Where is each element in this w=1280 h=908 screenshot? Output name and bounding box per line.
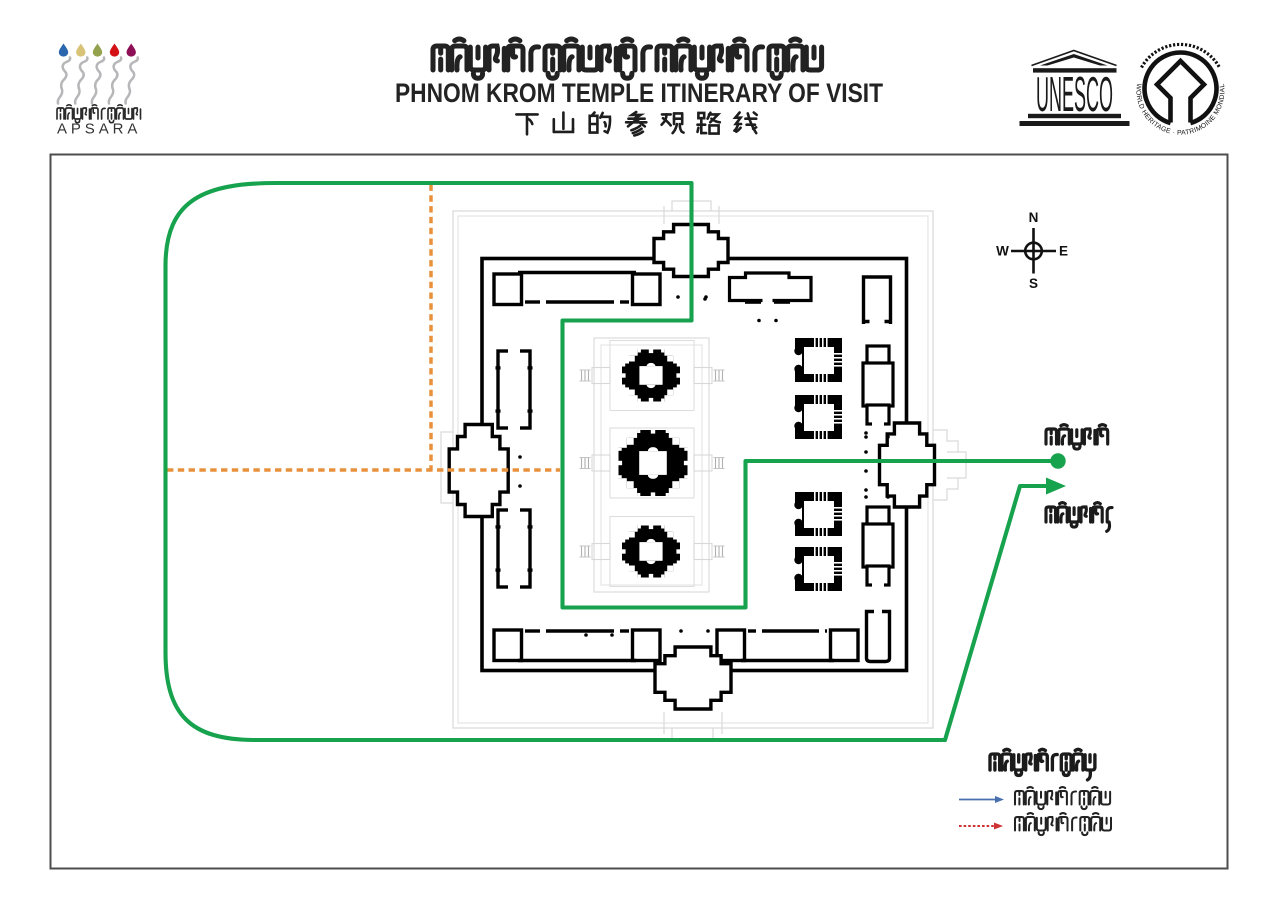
svg-text:WORLD HERITAGE · PATRIMOINE MO: WORLD HERITAGE · PATRIMOINE MONDIAL — [1134, 83, 1226, 137]
svg-text:PHNOM KROM TEMPLE ITINERARY OF: PHNOM KROM TEMPLE ITINERARY OF VISIT — [395, 78, 883, 108]
svg-text:APSARA: APSARA — [57, 121, 141, 138]
svg-text:W: W — [996, 244, 1009, 259]
svg-text:E: E — [1059, 244, 1068, 259]
svg-text:S: S — [1029, 276, 1038, 291]
svg-text:N: N — [1029, 210, 1039, 225]
